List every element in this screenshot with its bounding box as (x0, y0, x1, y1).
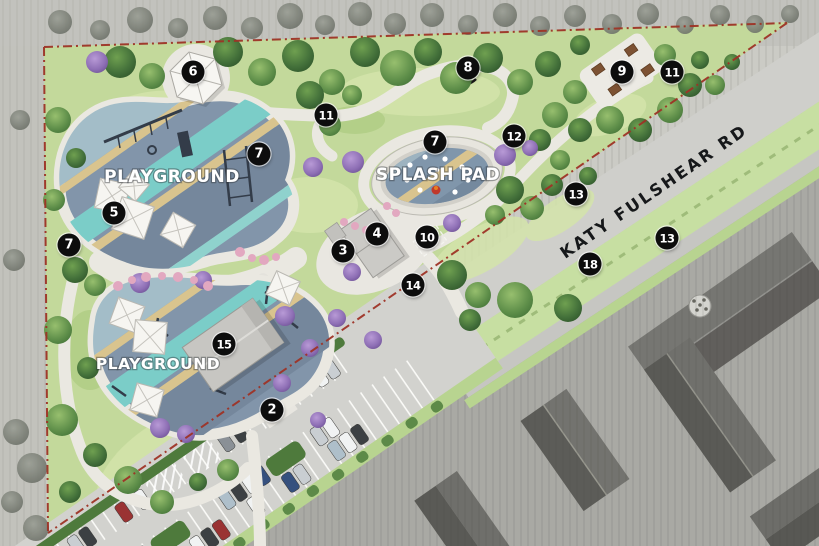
site-plan-rendering: PLAYGROUND PLAYGROUND SPLASH PAD KATY FU… (0, 0, 819, 546)
playground-upper-label: PLAYGROUND (104, 167, 240, 187)
park-site-plan: PLAYGROUND PLAYGROUND SPLASH PAD KATY FU… (0, 0, 819, 546)
splash-pad-label: SPLASH PAD (376, 165, 500, 185)
playground-lower-label: PLAYGROUND (96, 355, 220, 373)
